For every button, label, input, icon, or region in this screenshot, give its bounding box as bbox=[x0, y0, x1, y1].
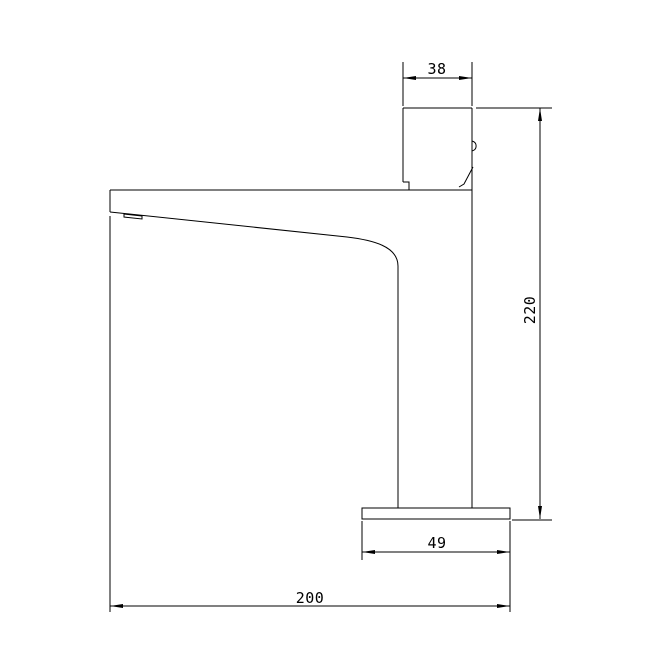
handle-button-arc bbox=[472, 141, 476, 151]
dimension-base-width: 49 bbox=[362, 521, 510, 612]
dimension-top-width-label: 38 bbox=[427, 60, 446, 78]
handle-bottom-notch bbox=[403, 182, 409, 190]
dimension-overall-length: 200 bbox=[110, 216, 510, 612]
dimension-overall-height-label: 220 bbox=[521, 296, 539, 325]
dimension-overall-length-label: 200 bbox=[296, 589, 325, 607]
dimension-arrowhead-left bbox=[362, 550, 375, 554]
spout-underside-and-column-front bbox=[110, 212, 398, 508]
dimension-arrowhead-right bbox=[459, 76, 472, 80]
base-plate bbox=[362, 508, 510, 519]
dimension-arrowhead-left bbox=[110, 604, 123, 608]
dimension-top-width: 38 bbox=[403, 60, 472, 106]
dimension-base-width-label: 49 bbox=[427, 534, 446, 552]
dimension-arrowhead-top bbox=[538, 108, 542, 121]
dimension-arrowhead-right bbox=[497, 604, 510, 608]
dimension-arrowhead-bottom bbox=[538, 506, 542, 519]
faucet-outline bbox=[110, 108, 510, 519]
handle-joint-detail bbox=[459, 167, 473, 187]
drawing-canvas: 38 220 49 200 bbox=[0, 0, 659, 659]
dimension-arrowhead-right bbox=[497, 550, 510, 554]
dimension-overall-height: 220 bbox=[476, 108, 552, 520]
faucet-technical-drawing: 38 220 49 200 bbox=[0, 0, 659, 659]
dimension-arrowhead-left bbox=[403, 76, 416, 80]
